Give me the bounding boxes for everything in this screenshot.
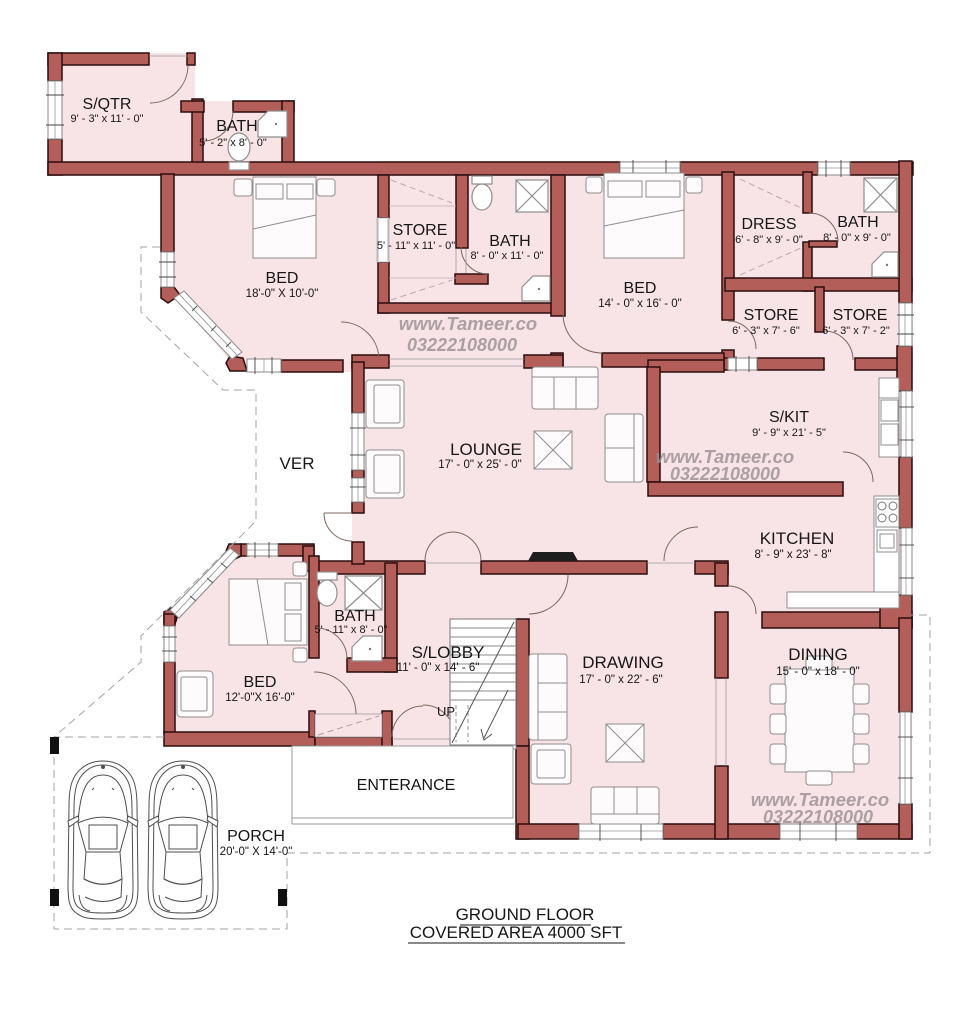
svg-text:5' - 11" x 8' - 0": 5' - 11" x 8' - 0" xyxy=(315,624,388,636)
svg-text:8' - 0" x 11' - 0": 8' - 0" x 11' - 0" xyxy=(471,250,544,262)
svg-text:S/LOBBY: S/LOBBY xyxy=(412,643,485,662)
svg-text:9' - 9" x 21' - 5": 9' - 9" x 21' - 5" xyxy=(752,427,826,439)
svg-text:BED: BED xyxy=(244,674,277,691)
svg-text:DINING: DINING xyxy=(788,645,848,664)
svg-text:9' - 3" x 11' - 0": 9' - 3" x 11' - 0" xyxy=(71,113,144,125)
svg-text:8' - 9" x 23' - 8": 8' - 9" x 23' - 8" xyxy=(754,549,831,561)
svg-text:BATH: BATH xyxy=(334,608,375,625)
svg-text:20'-0" X 14'-0": 20'-0" X 14'-0" xyxy=(220,846,293,858)
svg-text:5' - 11" x 11' - 0": 5' - 11" x 11' - 0" xyxy=(377,240,455,252)
svg-text:DRAWING: DRAWING xyxy=(582,653,664,672)
svg-text:DRESS: DRESS xyxy=(741,216,796,233)
svg-text:GROUND FLOOR: GROUND FLOOR xyxy=(456,905,595,924)
svg-text:S/KIT: S/KIT xyxy=(769,409,809,426)
svg-text:6' - 3" x 7' - 6": 6' - 3" x 7' - 6" xyxy=(732,325,800,337)
svg-text:www.Tameer.co: www.Tameer.co xyxy=(399,313,537,334)
svg-text:17' - 0" x 22' - 6": 17' - 0" x 22' - 6" xyxy=(579,674,663,686)
svg-text:6' - 3" x 7' - 2": 6' - 3" x 7' - 2" xyxy=(822,325,890,337)
svg-text:BATH: BATH xyxy=(216,118,257,135)
svg-text:STORE: STORE xyxy=(393,222,448,239)
svg-text:BED: BED xyxy=(266,270,299,287)
svg-text:ENTERANCE: ENTERANCE xyxy=(357,777,456,794)
svg-text:5' - 2" x 8' - 0": 5' - 2" x 8' - 0" xyxy=(199,137,267,149)
svg-text:LOUNGE: LOUNGE xyxy=(450,440,522,459)
svg-text:03222108000: 03222108000 xyxy=(763,807,873,827)
svg-text:VER: VER xyxy=(280,454,315,473)
svg-text:KITCHEN: KITCHEN xyxy=(760,529,835,548)
svg-text:STORE: STORE xyxy=(744,307,799,324)
svg-text:BATH: BATH xyxy=(489,233,530,250)
svg-text:15' - 0" x 18' - 0": 15' - 0" x 18' - 0" xyxy=(776,666,860,678)
svg-text:6' - 8" x 9' - 0": 6' - 8" x 9' - 0" xyxy=(735,234,803,246)
svg-text:03222108000: 03222108000 xyxy=(407,335,517,355)
svg-text:PORCH: PORCH xyxy=(227,828,285,845)
svg-text:03222108000: 03222108000 xyxy=(670,464,780,484)
svg-text:12'-0"X 16'-0": 12'-0"X 16'-0" xyxy=(225,692,294,704)
svg-text:8' - 0" x 9' - 0": 8' - 0" x 9' - 0" xyxy=(823,232,891,244)
svg-text:UP: UP xyxy=(437,704,455,719)
svg-text:11' - 0" x 14' - 6": 11' - 0" x 14' - 6" xyxy=(397,662,480,674)
svg-text:S/QTR: S/QTR xyxy=(83,96,132,113)
svg-text:BED: BED xyxy=(624,280,657,297)
svg-text:14' - 0" x 16' - 0": 14' - 0" x 16' - 0" xyxy=(598,298,682,310)
svg-text:COVERED AREA 4000 SFT: COVERED AREA 4000 SFT xyxy=(410,923,623,942)
svg-text:BATH: BATH xyxy=(837,214,878,231)
svg-text:17' - 0" x 25' - 0": 17' - 0" x 25' - 0" xyxy=(438,459,522,471)
svg-text:STORE: STORE xyxy=(833,307,888,324)
svg-text:18'-0" X 10'-0": 18'-0" X 10'-0" xyxy=(246,288,319,300)
